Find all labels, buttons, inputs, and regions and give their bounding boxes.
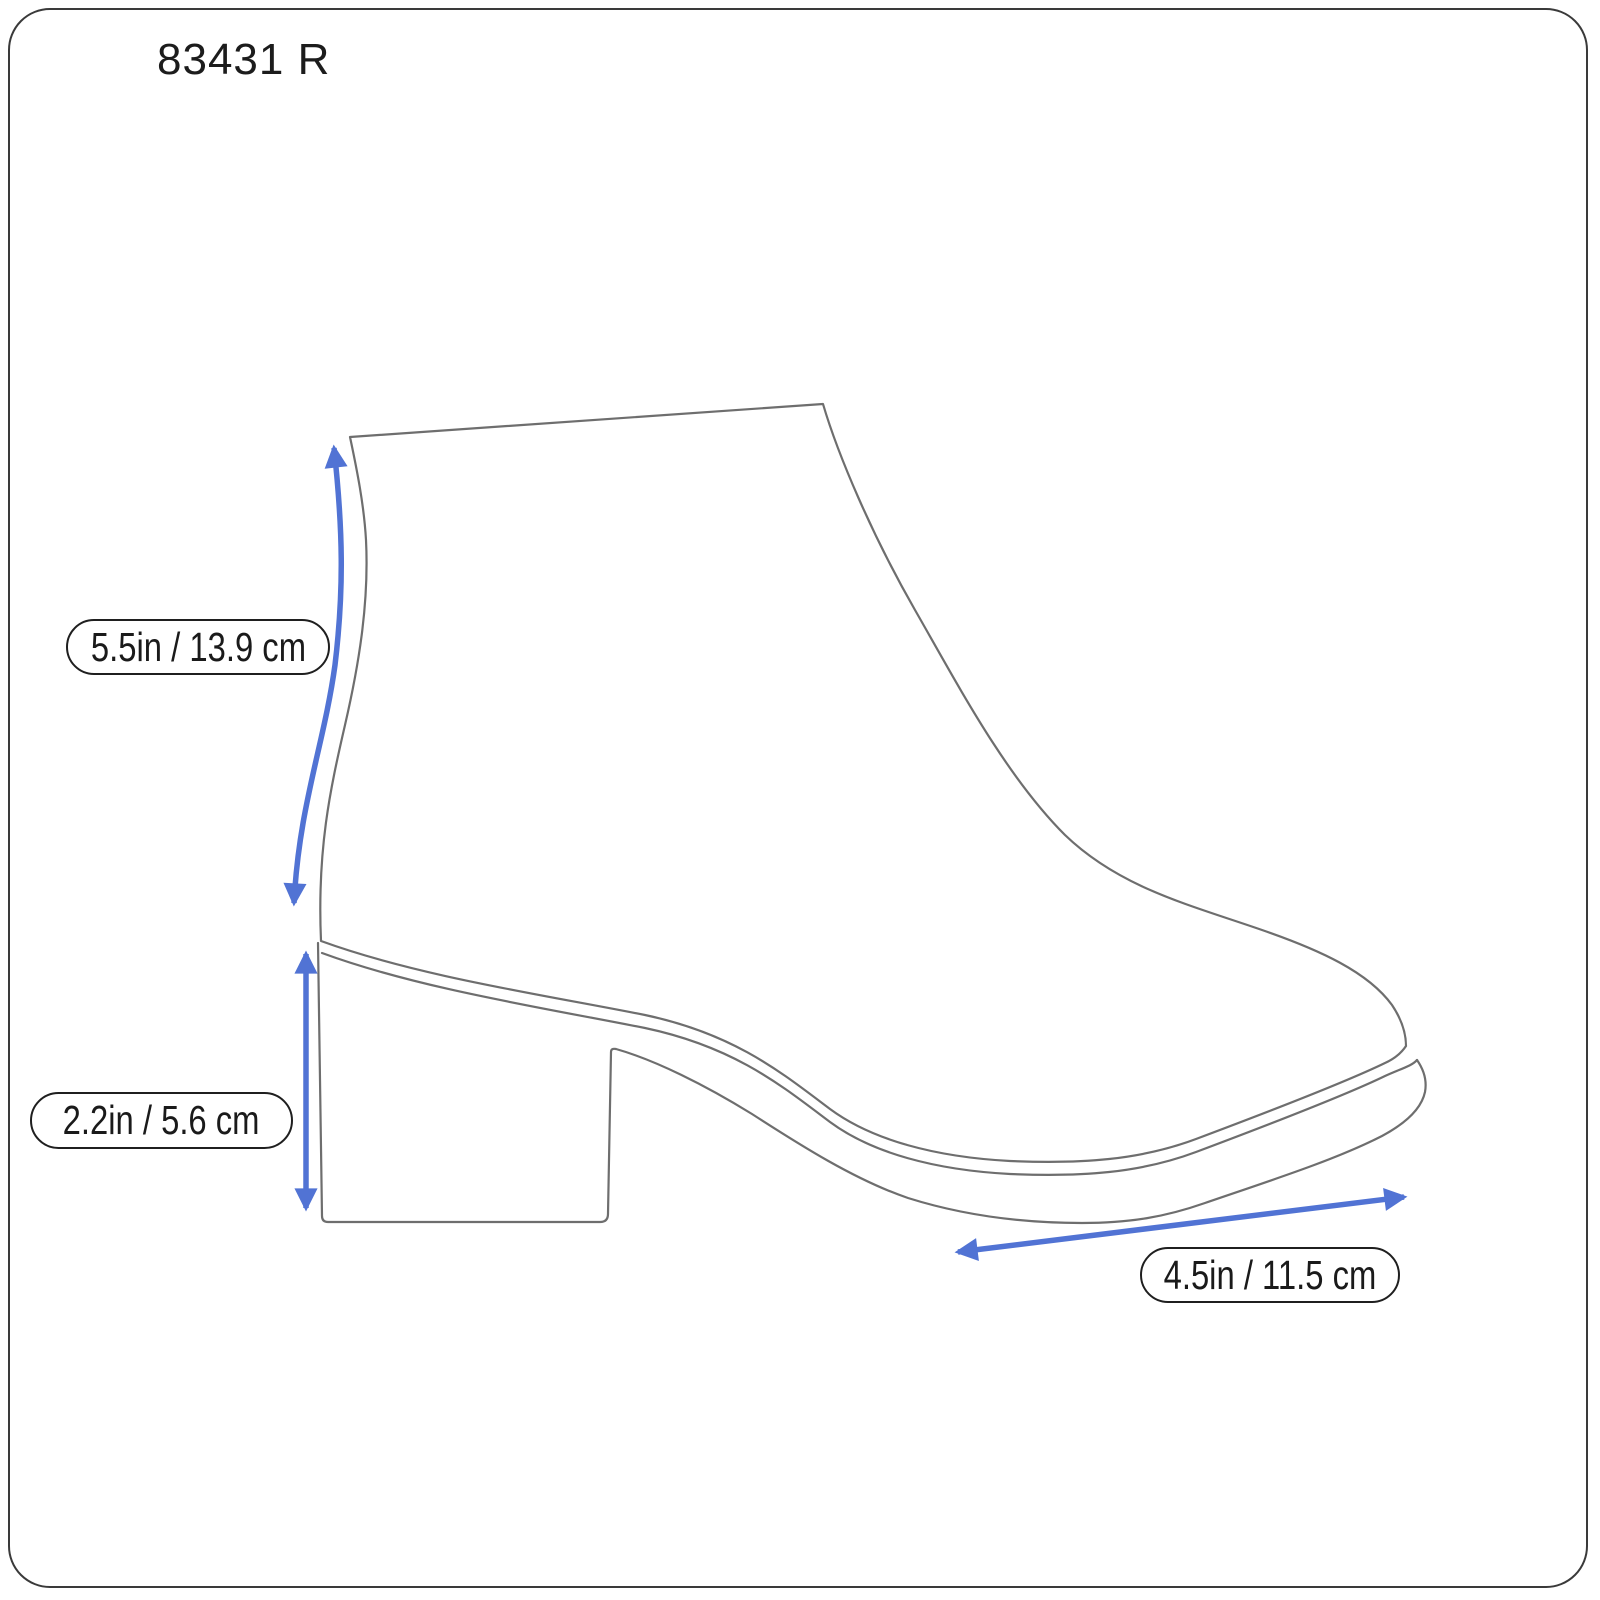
- sole-length-arrow: [958, 1197, 1404, 1252]
- shaft-height-value: 5.5in / 13.9 cm: [90, 624, 305, 671]
- boot-upper-outline: [320, 404, 1406, 1162]
- boot-diagram: [0, 0, 1600, 1600]
- heel-height-value: 2.2in / 5.6 cm: [63, 1097, 260, 1144]
- diagram-canvas: 83431 R 5.5in / 13.9 cm 2.2in / 5.6 cm 4…: [0, 0, 1600, 1600]
- sole-length-value: 4.5in / 11.5 cm: [1164, 1252, 1377, 1299]
- heel-height-label: 2.2in / 5.6 cm: [30, 1092, 293, 1149]
- sole-length-label: 4.5in / 11.5 cm: [1140, 1247, 1400, 1303]
- shaft-height-label: 5.5in / 13.9 cm: [66, 619, 330, 675]
